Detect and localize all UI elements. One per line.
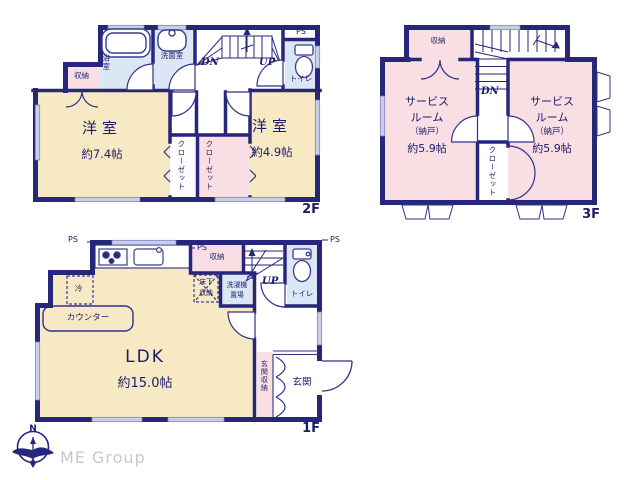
compass-icon [12,432,54,469]
label-3f-floor: 3F [570,208,600,222]
label-1f-ps-left: PS [68,236,78,244]
label-1f-ps-mid: PS [197,244,207,252]
label-3f-room1-name1: サービス [383,96,471,108]
toilet-2f-fixture [295,45,313,78]
bathtub-2f [102,29,150,57]
label-1f-laundry2: 置場 [221,292,253,299]
label-1f-ps-right: PS [330,236,340,244]
sink-2f [158,30,186,51]
label-2f-bedroom1-size: 約7.4帖 [58,148,146,160]
label-1f-entrance-storage: 玄関収納 [260,360,267,392]
entrance-door [316,361,353,395]
floor-1f-plan [35,240,352,422]
label-2f-toilet: トイレ [285,75,317,83]
toilet-1f-fixture [293,249,311,282]
label-2f-closet-right: クローゼット [205,140,213,191]
label-2f-washroom: 洗面室 [150,52,194,60]
label-1f-counter: カウンター [48,314,128,323]
compass-north-label: N [27,425,39,434]
floorplan-page: 収納 浴室 洗面室 PS トイレ DN UP 洋室 約7.4帖 洋室 約4.9帖… [0,0,640,480]
label-2f-floor: 2F [290,203,320,217]
kitchen-sink [134,248,163,265]
label-2f-ps: PS [285,28,317,36]
label-3f-room2-note: （納戸） [508,128,596,137]
label-1f-ldk-size: 約15.0帖 [95,377,195,391]
stove [99,249,127,265]
label-3f-storage: 収納 [420,37,456,45]
label-2f-bedroom1-name: 洋室 [58,121,146,137]
label-1f-fridge: 冷 [75,285,83,293]
label-1f-ldk-name: LDK [105,349,185,367]
label-3f-room2-size: 約5.9帖 [508,143,596,155]
label-2f-bath: 浴室 [102,54,110,71]
label-1f-floor: 1F [290,422,320,436]
label-1f-toilet: トイレ [286,290,318,298]
label-2f-up: UP [259,58,275,69]
label-3f-room1-note: （納戸） [383,128,471,137]
label-1f-underfloor2: 収納 [192,290,220,297]
label-3f-room2-name1: サービス [508,96,596,108]
label-1f-storage: 収納 [195,253,239,261]
label-3f-room1-size: 約5.9帖 [383,143,471,155]
label-1f-entrance: 玄関 [286,378,318,388]
label-3f-dn: DN [481,87,499,98]
label-3f-closet: クローゼット [488,146,496,197]
label-2f-bedroom2-size: 約4.9帖 [228,146,316,158]
company-logo-text: ME Group [60,450,146,467]
label-2f-storage: 収納 [63,72,100,80]
label-2f-bedroom2-name: 洋室 [228,119,316,135]
label-1f-up: UP [262,277,278,288]
label-3f-room2-name2: ルーム [508,112,596,124]
label-2f-dn: DN [201,58,219,69]
label-1f-underfloor1: 床下 [192,279,220,286]
label-3f-room1-name2: ルーム [383,112,471,124]
label-2f-closet-left: クローゼット [177,140,185,191]
label-1f-laundry1: 洗濯機 [221,282,253,289]
